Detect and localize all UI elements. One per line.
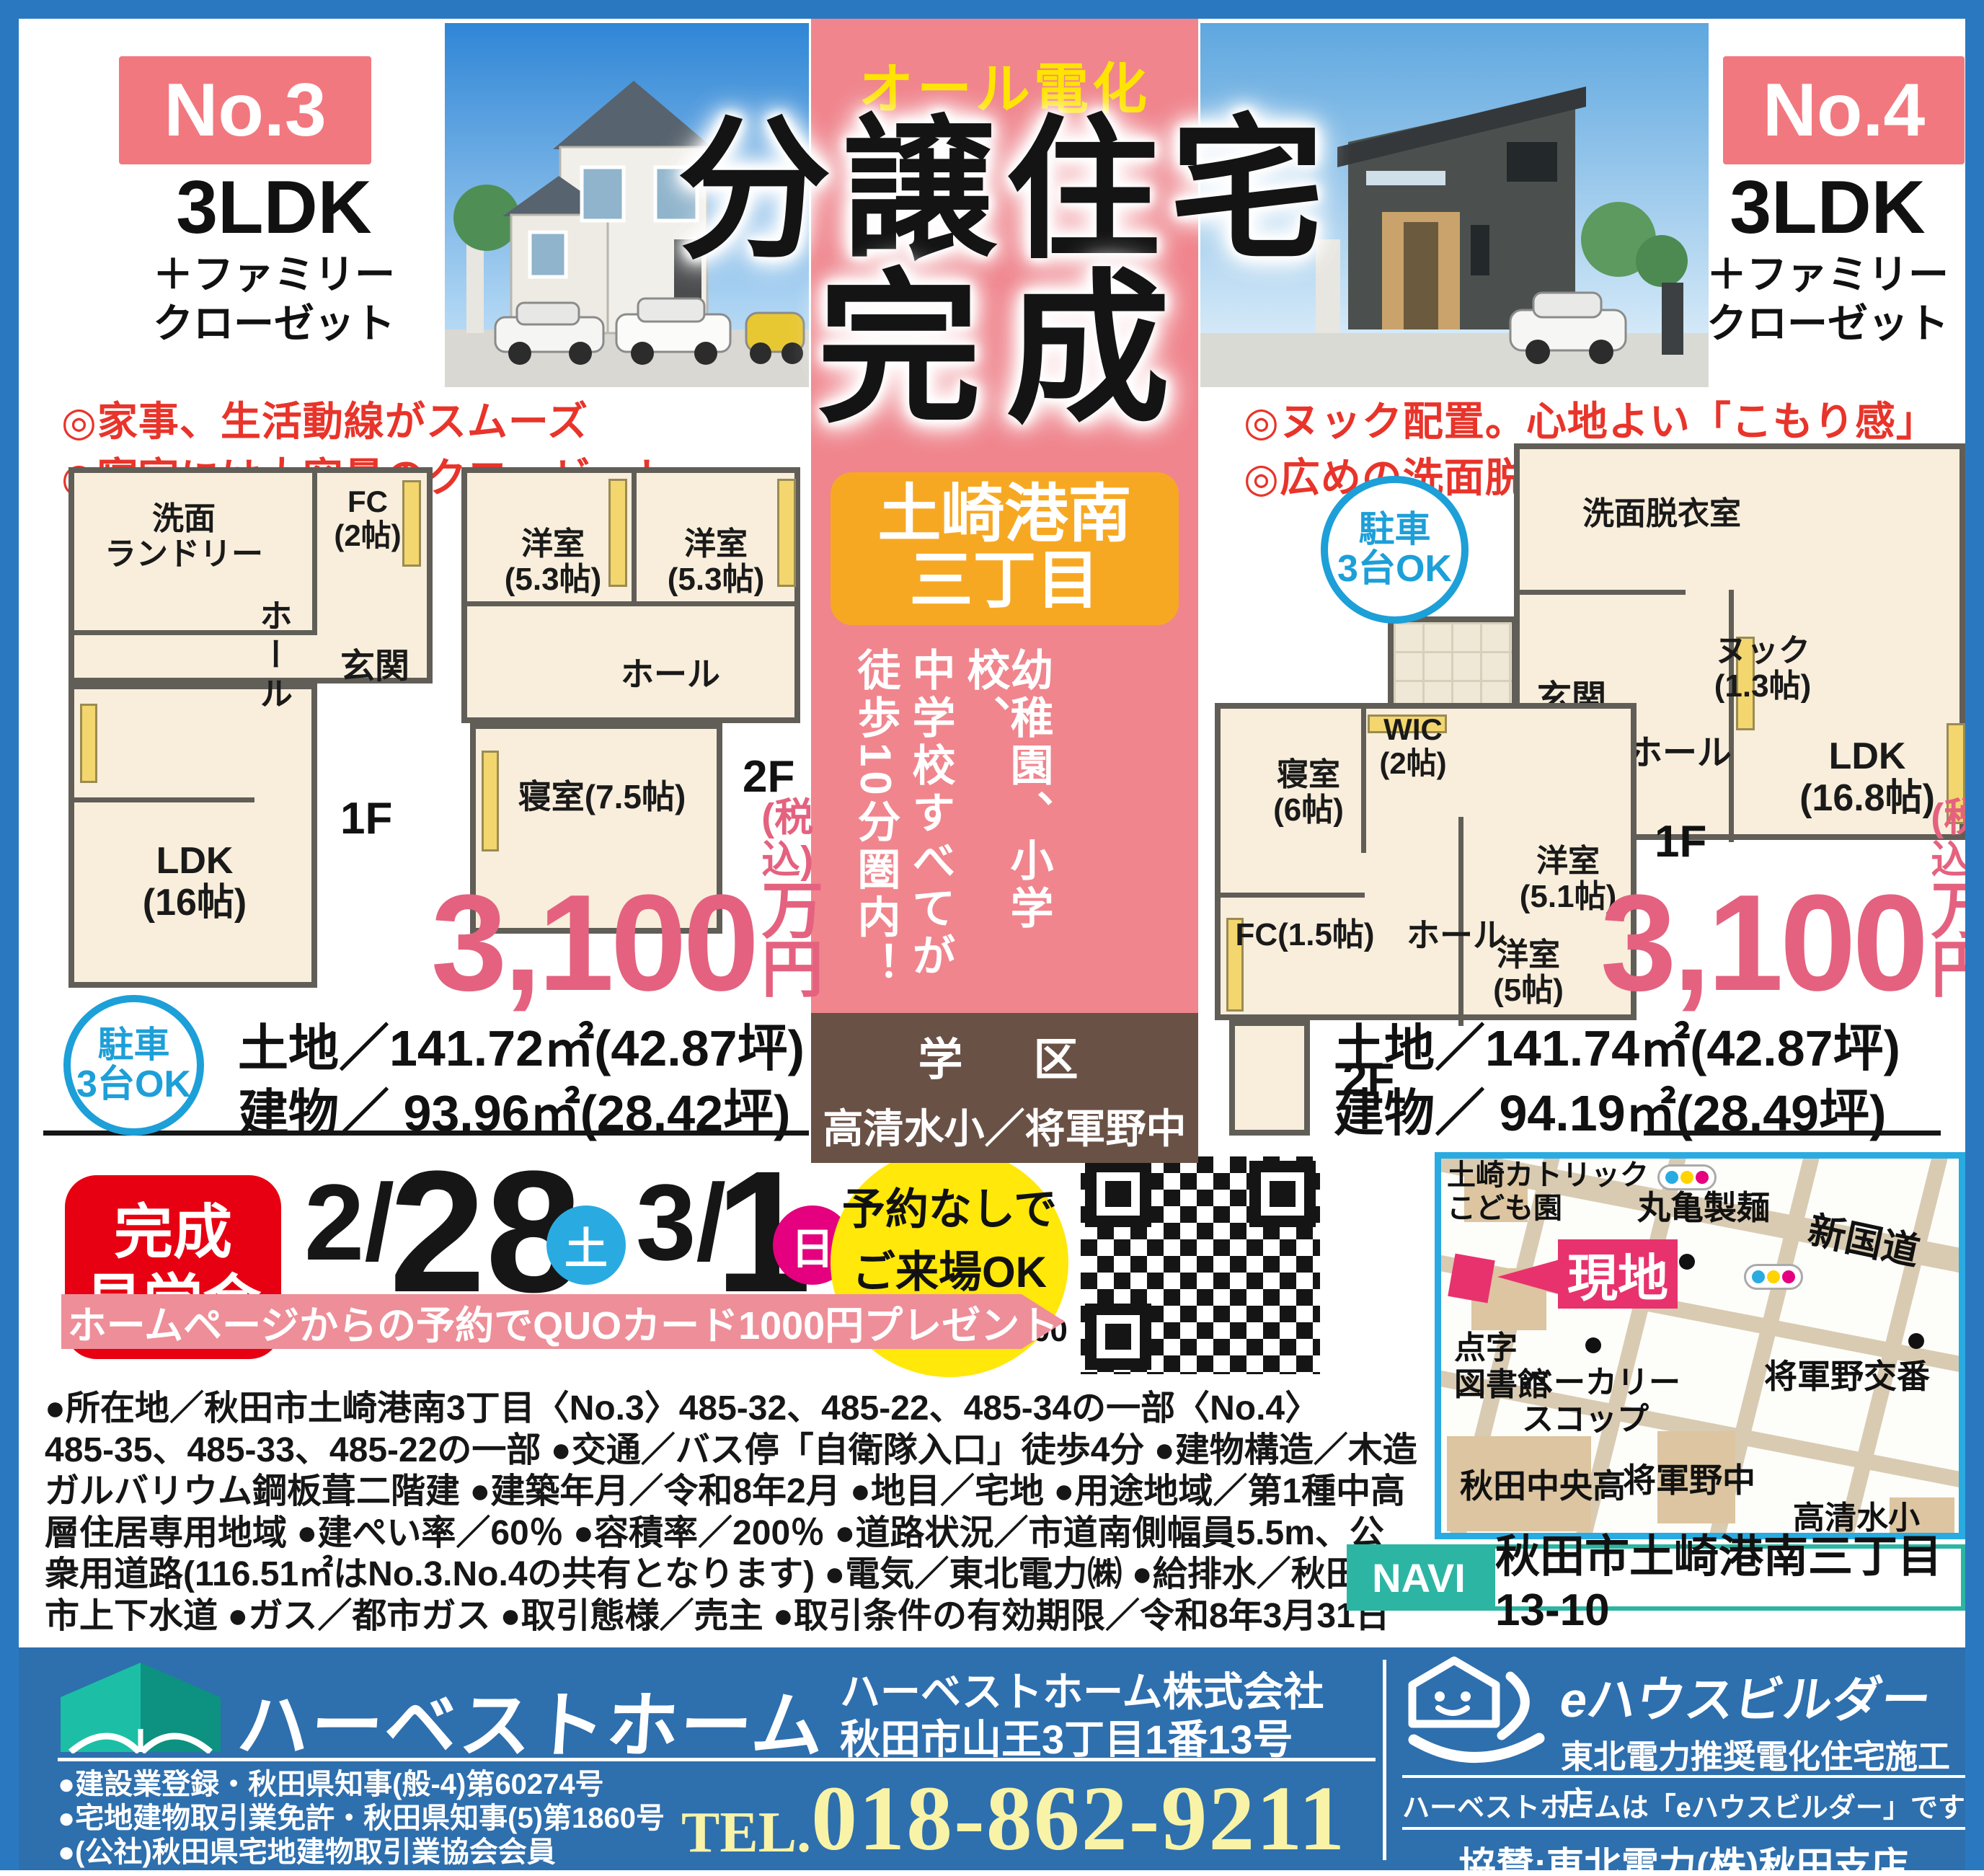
unit-no4-type-sub1: ＋ファミリー — [1683, 252, 1972, 297]
room-label: 洋室 (5帖) — [1463, 937, 1593, 1009]
map-label-shinkokudo: 新国道 — [1804, 1209, 1923, 1275]
e-house-builder-phrase: ハーベストホームは「eハウスビルダー」です — [1402, 1785, 1965, 1825]
divider-left — [43, 1131, 809, 1136]
map-marker-dot — [1585, 1337, 1601, 1353]
site-parcel — [1448, 1254, 1495, 1304]
room-label: 洗面脱衣室 — [1550, 496, 1773, 531]
school-district-box: 学 区 高清水小／将軍野中 — [811, 1013, 1198, 1163]
property-details: ●所在地／秋田市土崎港南3丁目〈No.3〉485-32、485-22、485-3… — [45, 1388, 1422, 1637]
harvest-home-logo — [58, 1660, 223, 1753]
footer-divider-right2 — [1402, 1827, 1965, 1830]
traffic-light-icon — [1744, 1264, 1803, 1290]
frame-left — [0, 0, 19, 1870]
footer-divider-vertical — [1383, 1660, 1386, 1860]
parking-line1: 駐車 — [98, 1025, 170, 1064]
room-label: 玄関 — [328, 647, 422, 686]
school-walk-line3: 徒歩10分圏内！ — [854, 647, 897, 1004]
site-label: 現地 — [1558, 1239, 1678, 1309]
main-title-line2: 完成 — [732, 268, 1280, 433]
price-no4: 3,100 (税込) 万円 — [1624, 903, 1970, 1000]
details-line: 層住居専用地域 ●建ぺい率／60％ ●容積率／200％ ●道路状況／市道南側幅員… — [45, 1513, 1422, 1554]
unit-no3-type-sub2: クローゼット — [108, 301, 440, 346]
map-marker-dot — [1679, 1254, 1695, 1270]
traffic-light-icon — [1657, 1164, 1717, 1190]
location-box: 土崎港南 三丁目 — [831, 472, 1179, 625]
divider-right — [1644, 1131, 1941, 1136]
parking-line2: 3台OK — [76, 1064, 191, 1105]
price-tax: (税込) — [761, 797, 823, 882]
unit-no4-type-sub2: クローゼット — [1683, 301, 1972, 346]
map-label-bakery: ベーカリー スコップ — [1522, 1365, 1680, 1438]
map-marker-dot — [1908, 1333, 1924, 1349]
phone-digits: 018-862-9211 — [811, 1777, 1346, 1862]
footer-divider-left — [58, 1758, 1376, 1761]
floor-label-no4-1f: 1F — [1655, 816, 1706, 867]
no-reservation-line1: 予約なしで — [842, 1174, 1057, 1237]
no4-land: 土地／141.74㎡(42.87坪) — [1334, 1008, 1900, 1081]
school-walk-line2: 中学校すべてが — [908, 647, 952, 1004]
unit-no3-type: 3LDK — [108, 170, 440, 245]
site-pointer — [1497, 1260, 1559, 1294]
unit-no3-badge: No.3 — [119, 56, 371, 164]
room-label: WIC (2帖) — [1355, 712, 1471, 780]
qr-code — [1078, 1154, 1323, 1377]
event-date1-month: 2/ — [304, 1174, 394, 1271]
price-no3: 3,100 (税込) 万円 — [454, 903, 800, 1000]
details-line: 市上下水道 ●ガス／都市ガス ●取引態様／売主 ●取引条件の有効期限／令和8年3… — [45, 1596, 1422, 1637]
unit-no4-badge: No.4 — [1723, 56, 1965, 164]
frame-right — [1965, 0, 1984, 1870]
school-walk-line1: 幼稚園、小学校、 — [963, 647, 1050, 1004]
sponsor-line: 協賛:東北電力(株)秋田支店 — [1402, 1836, 1965, 1876]
phone-label: TEL. — [681, 1804, 811, 1862]
room-label: LDK (16帖) — [108, 840, 281, 924]
quo-card-banner: ホームページからの予約でQUOカード1000円プレゼント — [61, 1294, 1065, 1349]
school-district-value: 高清水小／将軍野中 — [811, 1097, 1198, 1155]
location-line1: 土崎港南 — [831, 481, 1179, 547]
parking-badge-no3: 駐車 3台OK — [63, 995, 204, 1136]
company-address: 秋田市山王3丁目1番13号 — [840, 1707, 1377, 1766]
flyer-page: No.3 3LDK ＋ファミリー クローゼット — [0, 0, 1984, 1876]
event-date1-dow: 土 — [546, 1205, 626, 1285]
room-label: ホール — [613, 656, 728, 694]
room-label: ヌック (1.3帖) — [1694, 633, 1831, 704]
details-line: ●所在地／秋田市土崎港南3丁目〈No.3〉485-32、485-22、485-3… — [45, 1388, 1422, 1430]
parking-badge-no4: 駐車 3台OK — [1321, 476, 1469, 624]
navi-address: 秋田市土崎港南三丁目13-10 — [1491, 1544, 1965, 1611]
event-date2-month: 3/ — [636, 1174, 726, 1271]
e-house-builder-name: eハウスビルダー — [1556, 1660, 1974, 1731]
map-label-marugame: 丸亀製麺 — [1637, 1189, 1770, 1227]
floorplan-no4-2f-stub — [1229, 1020, 1310, 1136]
details-line: 485-35、485-33、485-22の一部 ●交通／バス停「自衛隊入口」徒歩… — [45, 1430, 1422, 1472]
room-label: ホール — [249, 598, 292, 715]
license-line: ●宅地建物取引業免許・秋田県知事(5)第1860号 — [58, 1802, 692, 1836]
quo-card-banner-text: ホームページからの予約でQUOカード1000円プレゼント — [68, 1293, 1058, 1350]
room-label: FC(1.5帖) — [1222, 917, 1388, 952]
details-line: ガルバリウム鋼板葺二階建 ●建築年月／令和8年2月 ●地目／宅地 ●用途地域／第… — [45, 1471, 1422, 1513]
floor-label-no3-1f: 1F — [340, 793, 392, 844]
frame-top — [0, 0, 1984, 19]
price-amount: 3,100 — [1600, 888, 1925, 1000]
room-label: FC (2帖) — [317, 485, 418, 552]
map-label-shogunno: 将軍野中 — [1623, 1461, 1755, 1500]
brand-name: ハーベストホーム — [234, 1667, 833, 1771]
license-line: ●(公社)秋田県宅地建物取引業協会会員 — [58, 1836, 692, 1870]
navi-label: NAVI — [1347, 1544, 1491, 1611]
location-line2: 三丁目 — [831, 547, 1179, 614]
license-line: ●建設業登録・秋田県知事(般-4)第60274号 — [58, 1768, 692, 1802]
school-district-label: 学 区 — [811, 1023, 1198, 1088]
main-title-line1: 分譲住宅 — [652, 114, 1359, 268]
unit-no4-type: 3LDK — [1683, 170, 1972, 245]
parking-line2: 3台OK — [1337, 549, 1452, 589]
map-label-koban: 将軍野交番 — [1764, 1358, 1930, 1396]
parking-line1: 駐車 — [1359, 510, 1431, 549]
e-house-builder-logo — [1402, 1655, 1550, 1770]
price-amount: 3,100 — [431, 888, 756, 1000]
no3-feature-1: ◎家事、生活動線がスムーズ — [61, 389, 588, 448]
footer-divider-right1 — [1402, 1775, 1965, 1778]
map-label-chuoko: 秋田中央高 — [1460, 1467, 1626, 1505]
floor-label-no3-2f: 2F — [743, 751, 794, 802]
no4-feature-1: ◎ヌック配置。心地よい「こもり感」 — [1244, 389, 1937, 448]
open-house-line1: 完成 — [65, 1198, 281, 1268]
floorplan-no3-1f-lower — [68, 683, 317, 988]
map-label-kindergarten: 土崎カトリック こども園 — [1447, 1159, 1649, 1225]
room-label: 寝室(7.5帖) — [505, 779, 699, 816]
school-walk-copy: 幼稚園、小学校、 中学校すべてが 徒歩10分圏内！ — [842, 647, 1061, 1004]
phone-number: TEL. 018-862-9211 — [681, 1768, 1346, 1862]
unit-no3-type-sub1: ＋ファミリー — [108, 252, 440, 297]
no-reservation-line2: ご来場OK — [852, 1237, 1047, 1300]
license-registrations: ●建設業登録・秋田県知事(般-4)第60274号 ●宅地建物取引業免許・秋田県知… — [58, 1768, 692, 1869]
no3-land: 土地／141.72㎡(42.87坪) — [238, 1008, 805, 1081]
room-label: 洋室 (5.3帖) — [647, 526, 784, 598]
room-label: 洋室 (5.3帖) — [484, 526, 621, 598]
room-label: 洗面 ランドリー — [87, 501, 281, 572]
details-line: 衆用道路(116.51㎡はNo.3.No.4の共有となります) ●電気／東北電力… — [45, 1554, 1422, 1596]
price-unit: 万円 — [761, 882, 823, 1000]
access-map: 現地 土崎カトリック こども園 丸亀製麺 新国道 点字 図書館 ベーカリー スコ… — [1435, 1152, 1965, 1539]
